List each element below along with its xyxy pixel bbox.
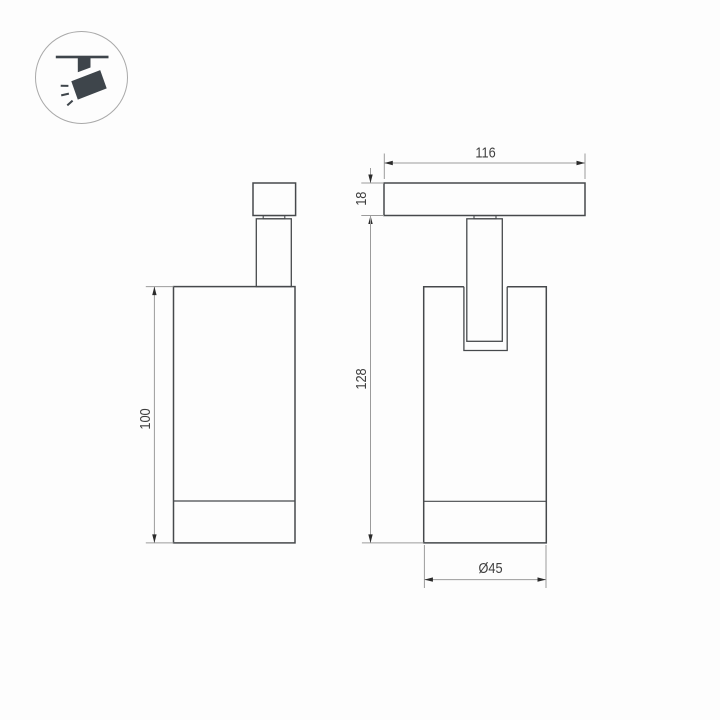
svg-text:100: 100 [136, 408, 153, 429]
svg-text:18: 18 [352, 191, 369, 205]
svg-text:128: 128 [352, 368, 369, 389]
svg-text:116: 116 [475, 143, 496, 160]
svg-text:Ø45: Ø45 [478, 559, 502, 576]
